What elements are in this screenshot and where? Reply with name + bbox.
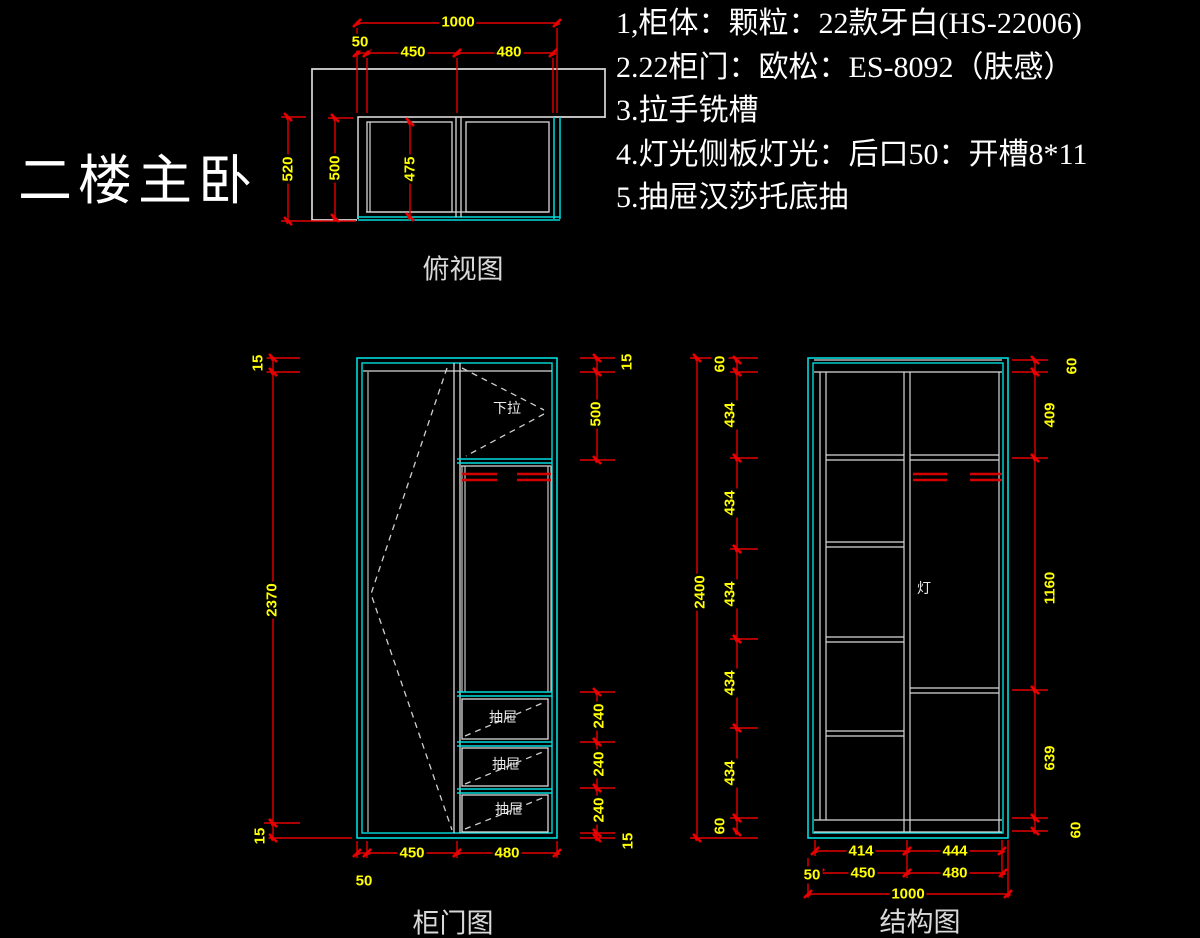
pull-down-annotation: 下拉 <box>493 398 521 418</box>
dim-seg-1: 434 <box>722 400 739 429</box>
structure-view-dimensions <box>690 358 1048 898</box>
dim-seg-2: 434 <box>722 488 739 517</box>
structure-view-label: 结构图 <box>880 901 961 938</box>
door-view-linework <box>357 358 557 838</box>
light-annotation: 灯 <box>917 578 931 598</box>
dim-seg-bottom: 60 <box>712 816 729 837</box>
dim-cabinet-depth: 500 <box>327 153 344 182</box>
structure-view-linework <box>808 358 1008 838</box>
dim-pulldown-height: 500 <box>588 399 605 428</box>
dim-inner-left-width: 414 <box>846 843 875 860</box>
drawer-annotation-2: 抽屉 <box>492 754 520 774</box>
dim-rod-space: 409 <box>1042 400 1059 429</box>
dim-top-panel: 15 <box>250 353 267 374</box>
dim-seg-4: 434 <box>722 668 739 697</box>
dim-overall-width: 1000 <box>439 14 476 31</box>
dim-back-offset: 50 <box>350 34 371 51</box>
dim-lower-space: 639 <box>1042 743 1059 772</box>
spec-notes: 1,柜体：颗粒：22款牙白(HS-22006) 2.22柜门：欧松：ES-809… <box>616 2 1087 220</box>
dim-inner-right-width: 444 <box>940 843 969 860</box>
dim-door-right-width: 480 <box>492 845 521 862</box>
dim-bottom-panel-right: 15 <box>620 831 637 852</box>
top-view-linework <box>312 69 605 220</box>
dim-bottom-panel: 15 <box>252 826 269 847</box>
drawing-title: 二楼主卧 <box>18 136 258 215</box>
door-view-label: 柜门图 <box>413 902 494 938</box>
note-line: 1,柜体：颗粒：22款牙白(HS-22006) <box>616 2 1087 46</box>
dim-seg-top: 60 <box>712 354 729 375</box>
dim-right-section: 480 <box>494 44 523 61</box>
dim-drawer-height-2: 240 <box>591 749 608 778</box>
note-line: 4.灯光侧板灯光：后口50：开槽8*11 <box>616 133 1087 177</box>
dim-seg-3: 434 <box>722 579 739 608</box>
dim-drawer-height-1: 240 <box>591 701 608 730</box>
dim-door-left-width: 450 <box>397 845 426 862</box>
top-view-label: 俯视图 <box>423 248 504 287</box>
dim-total-depth: 520 <box>280 154 297 183</box>
dim-seg-5: 434 <box>722 758 739 787</box>
note-line: 3.拉手铣槽 <box>616 89 1087 133</box>
dim-overall-height-structure: 2400 <box>692 573 709 610</box>
dim-overall-height: 2370 <box>264 581 281 618</box>
dim-structure-offset: 50 <box>802 867 823 884</box>
door-view-dimensions <box>264 358 615 858</box>
dim-left-section: 450 <box>398 44 427 61</box>
drawer-annotation-1: 抽屉 <box>489 707 517 727</box>
dim-top-panel-right: 15 <box>619 352 636 373</box>
note-line: 2.22柜门：欧松：ES-8092（肤感） <box>616 46 1087 90</box>
drawer-annotation-3: 抽屉 <box>495 799 523 819</box>
dim-inner-depth: 475 <box>402 154 419 183</box>
dim-right-bottom: 60 <box>1068 820 1085 841</box>
dim-drawer-height-3: 240 <box>591 795 608 824</box>
dim-door-offset: 50 <box>354 873 375 890</box>
dim-structure-left-width: 450 <box>848 865 877 882</box>
cad-drawing-viewport: 二楼主卧 1,柜体：颗粒：22款牙白(HS-22006) 2.22柜门：欧松：E… <box>0 0 1200 938</box>
note-line: 5.抽屉汉莎托底抽 <box>616 176 1087 220</box>
dim-hanging-space: 1160 <box>1042 570 1059 607</box>
dim-structure-right-width: 480 <box>940 865 969 882</box>
dim-right-top: 60 <box>1064 356 1081 377</box>
